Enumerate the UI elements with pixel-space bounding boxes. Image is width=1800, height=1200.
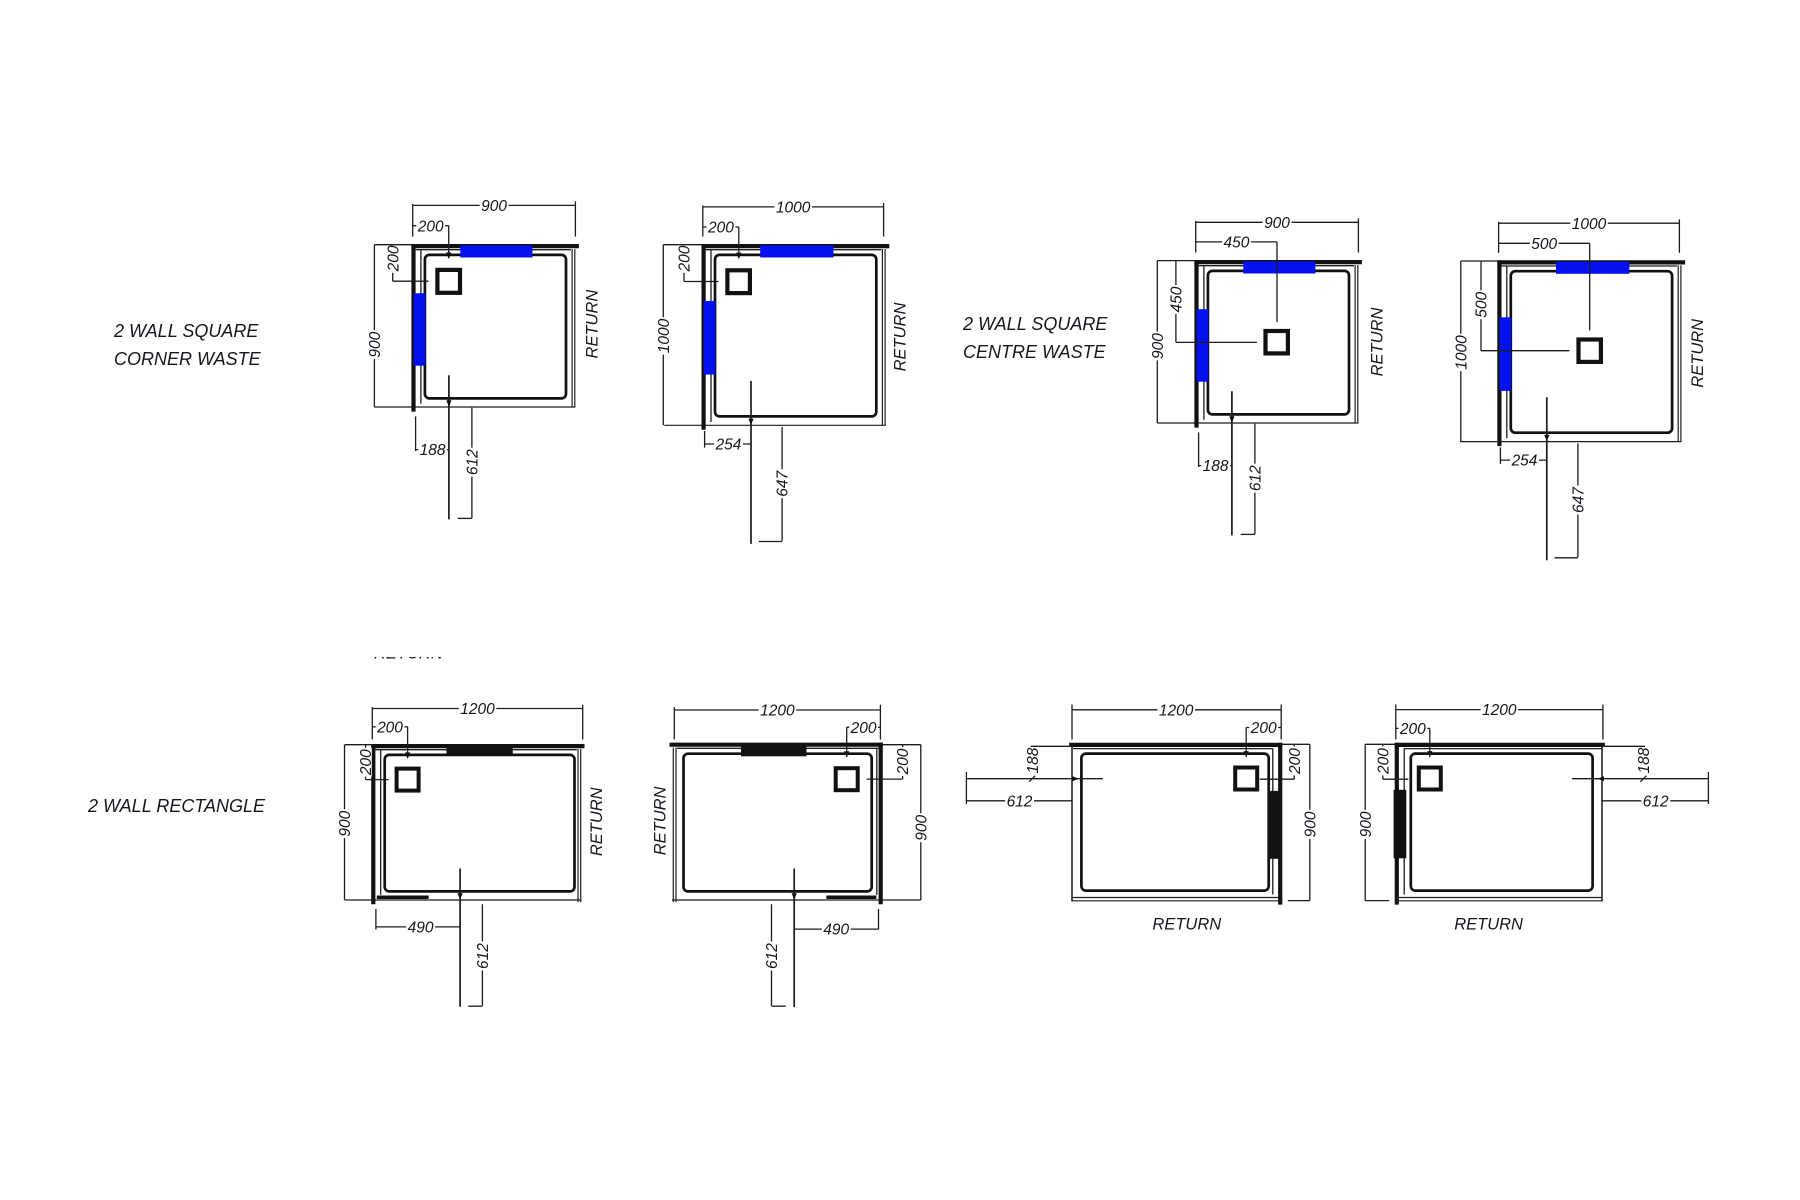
svg-text:RETURN: RETURN	[1369, 308, 1387, 377]
svg-text:612: 612	[1007, 793, 1033, 810]
svg-text:200: 200	[417, 218, 444, 235]
svg-text:188: 188	[420, 442, 446, 459]
svg-text:1200: 1200	[1159, 702, 1194, 719]
svg-text:450: 450	[1169, 286, 1186, 312]
svg-text:200: 200	[1287, 748, 1304, 775]
svg-text:2 WALL SQUARE: 2 WALL SQUARE	[113, 321, 259, 341]
svg-text:RETURN: RETURN	[588, 787, 606, 856]
svg-text:647: 647	[1571, 486, 1588, 513]
svg-text:1000: 1000	[1453, 335, 1470, 370]
svg-text:900: 900	[1302, 811, 1319, 837]
svg-text:900: 900	[1264, 215, 1290, 232]
svg-text:500: 500	[1474, 291, 1491, 317]
svg-text:1000: 1000	[656, 318, 673, 353]
svg-text:490: 490	[823, 922, 849, 939]
svg-text:200: 200	[1375, 748, 1392, 775]
svg-text:CORNER WASTE: CORNER WASTE	[114, 349, 262, 369]
svg-text:188: 188	[1636, 747, 1653, 773]
svg-text:2 WALL RECTANGLE: 2 WALL RECTANGLE	[87, 796, 266, 816]
svg-text:RETURN: RETURN	[891, 303, 909, 372]
svg-text:1200: 1200	[460, 701, 495, 718]
svg-text:CENTRE WASTE: CENTRE WASTE	[963, 342, 1107, 362]
svg-text:900: 900	[367, 331, 384, 357]
svg-text:RETURN: RETURN	[1689, 319, 1707, 388]
svg-text:200: 200	[385, 245, 402, 272]
svg-text:RETURN: RETURN	[651, 786, 669, 855]
svg-text:612: 612	[465, 449, 482, 475]
svg-text:612: 612	[764, 943, 781, 969]
svg-text:188: 188	[1025, 747, 1042, 773]
svg-text:200: 200	[1399, 721, 1426, 738]
svg-text:200: 200	[358, 749, 375, 776]
svg-text:900: 900	[913, 814, 930, 840]
svg-text:200: 200	[376, 719, 403, 736]
svg-text:900: 900	[337, 810, 354, 836]
svg-text:254: 254	[1511, 453, 1538, 470]
svg-text:900: 900	[1358, 811, 1375, 837]
svg-text:RETURN: RETURN	[1454, 916, 1523, 934]
svg-text:490: 490	[408, 920, 434, 937]
svg-text:188: 188	[1203, 458, 1229, 475]
svg-text:200: 200	[850, 720, 877, 737]
svg-text:612: 612	[1643, 793, 1669, 810]
svg-text:RETURN: RETURN	[583, 290, 601, 359]
svg-text:200: 200	[677, 245, 694, 272]
svg-text:612: 612	[475, 943, 492, 969]
svg-text:900: 900	[1150, 333, 1167, 359]
svg-text:500: 500	[1531, 236, 1557, 253]
svg-text:1200: 1200	[760, 703, 795, 720]
svg-text:1000: 1000	[776, 200, 811, 217]
svg-text:450: 450	[1223, 235, 1249, 252]
svg-text:612: 612	[1248, 465, 1265, 491]
svg-text:647: 647	[775, 469, 792, 496]
svg-text:RETURN: RETURN	[1152, 916, 1221, 934]
svg-text:900: 900	[481, 198, 507, 215]
svg-text:200: 200	[1250, 720, 1277, 737]
svg-text:2 WALL SQUARE: 2 WALL SQUARE	[962, 314, 1108, 334]
svg-text:200: 200	[707, 220, 734, 237]
svg-text:1200: 1200	[1482, 702, 1517, 719]
svg-text:200: 200	[895, 748, 912, 775]
svg-text:254: 254	[715, 437, 742, 454]
svg-text:1000: 1000	[1572, 216, 1607, 233]
